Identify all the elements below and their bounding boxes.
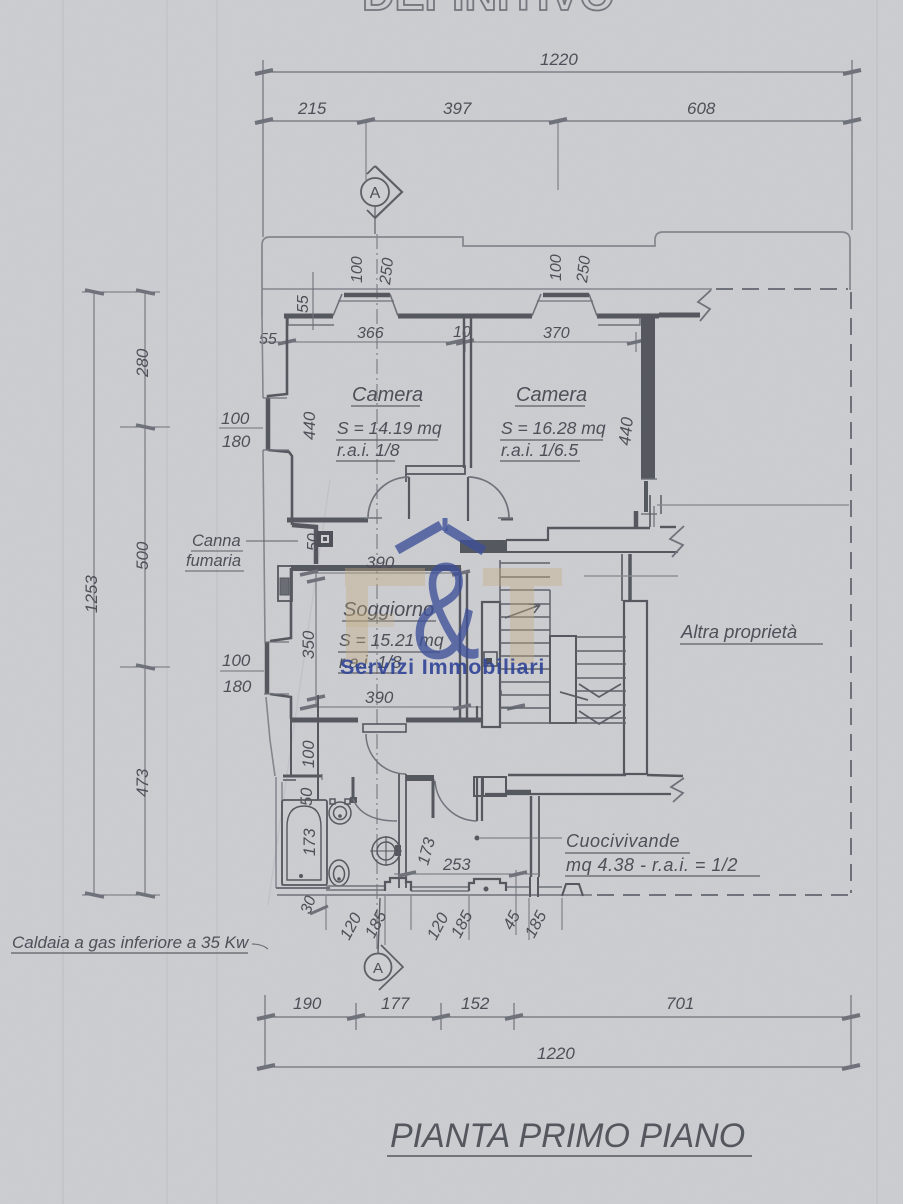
svg-text:100: 100 xyxy=(300,740,318,768)
svg-text:A: A xyxy=(370,185,381,202)
svg-text:180: 180 xyxy=(223,677,252,696)
svg-text:Camera: Camera xyxy=(352,384,423,406)
svg-text:1220: 1220 xyxy=(540,50,578,69)
svg-text:701: 701 xyxy=(666,994,694,1013)
svg-text:366: 366 xyxy=(357,325,384,342)
svg-text:397: 397 xyxy=(443,99,472,118)
svg-text:r.a.i. 1/8: r.a.i. 1/8 xyxy=(337,440,400,460)
svg-text:100: 100 xyxy=(548,254,565,281)
svg-text:177: 177 xyxy=(381,994,410,1013)
svg-text:DEFINITIVO: DEFINITIVO xyxy=(362,0,615,20)
svg-text:55: 55 xyxy=(295,295,312,313)
svg-text:100: 100 xyxy=(349,256,366,283)
svg-text:S = 16.28 mq: S = 16.28 mq xyxy=(501,418,606,438)
svg-text:r.a.i. 1/6.5: r.a.i. 1/6.5 xyxy=(501,440,578,460)
svg-text:180: 180 xyxy=(222,432,251,451)
svg-text:250: 250 xyxy=(574,255,594,285)
svg-text:608: 608 xyxy=(687,99,716,118)
svg-text:370: 370 xyxy=(543,325,570,342)
svg-text:fumaria: fumaria xyxy=(186,552,241,570)
svg-text:473: 473 xyxy=(133,768,152,797)
svg-text:S = 14.19 mq: S = 14.19 mq xyxy=(337,418,442,438)
svg-text:440: 440 xyxy=(615,416,637,447)
svg-text:PIANTA PRIMO PIANO: PIANTA PRIMO PIANO xyxy=(390,1117,745,1155)
svg-text:10: 10 xyxy=(453,324,471,341)
svg-text:152: 152 xyxy=(461,994,490,1013)
svg-text:Caldaia a gas inferiore a 35 K: Caldaia a gas inferiore a 35 Kw xyxy=(12,933,250,952)
svg-text:173: 173 xyxy=(301,828,319,856)
svg-text:440: 440 xyxy=(300,411,319,440)
svg-text:A: A xyxy=(373,960,383,977)
svg-text:390: 390 xyxy=(365,688,394,707)
svg-text:1220: 1220 xyxy=(537,1044,575,1063)
svg-text:250: 250 xyxy=(377,257,397,287)
svg-text:100: 100 xyxy=(222,651,251,670)
svg-text:280: 280 xyxy=(133,348,152,378)
svg-text:Altra proprietà: Altra proprietà xyxy=(680,621,797,642)
svg-text:Cuocivivande: Cuocivivande xyxy=(566,831,680,851)
svg-text:50: 50 xyxy=(298,787,316,806)
svg-text:Camera: Camera xyxy=(516,384,587,406)
svg-text:1253: 1253 xyxy=(82,575,101,613)
svg-text:253: 253 xyxy=(442,856,471,874)
svg-text:215: 215 xyxy=(297,99,327,118)
svg-text:190: 190 xyxy=(293,994,322,1013)
svg-text:350: 350 xyxy=(299,630,318,659)
svg-text:500: 500 xyxy=(133,541,152,570)
svg-text:Canna: Canna xyxy=(192,532,241,550)
svg-text:50: 50 xyxy=(305,533,322,551)
svg-text:Servizi Immobiliari: Servizi Immobiliari xyxy=(340,655,545,679)
svg-text:mq 4.38 - r.a.i. = 1/2: mq 4.38 - r.a.i. = 1/2 xyxy=(566,855,738,875)
svg-text:100: 100 xyxy=(221,409,250,428)
